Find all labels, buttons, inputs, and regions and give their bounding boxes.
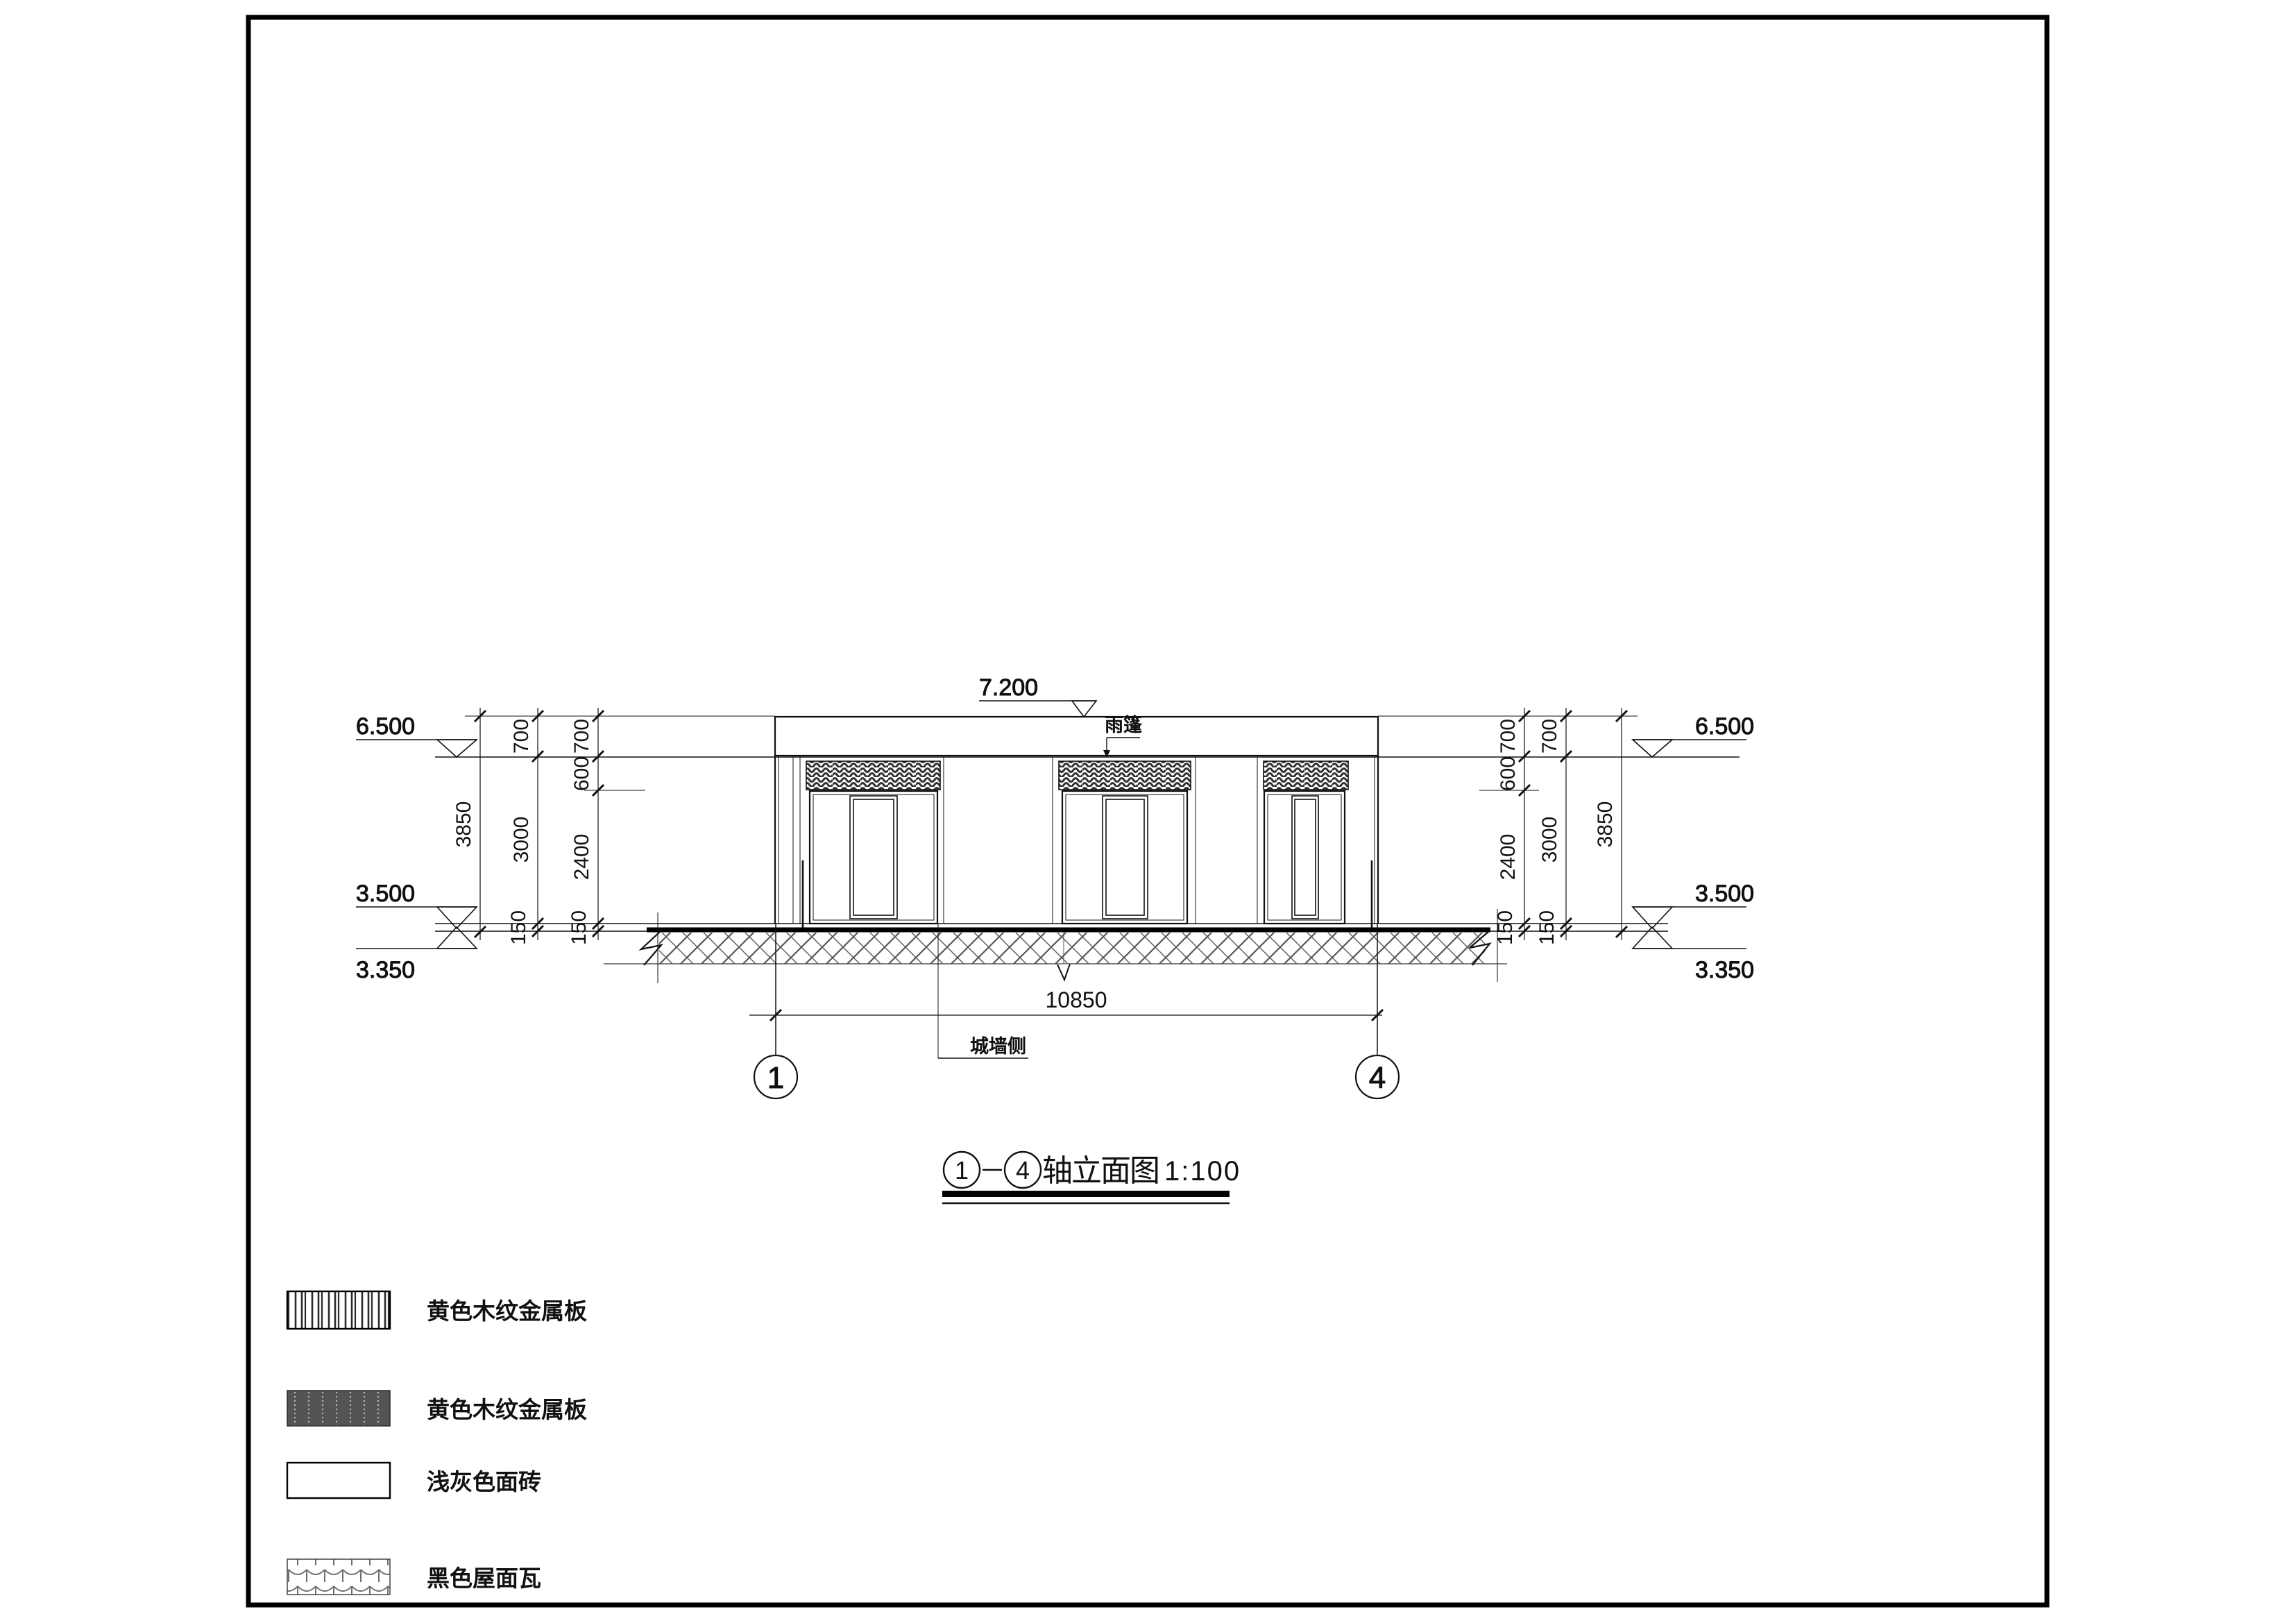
marker-right-3500-label: 3.500 bbox=[1695, 881, 1754, 907]
dim-right-in-600: 600 bbox=[1497, 756, 1520, 791]
dimension-texts: 3850 700 3000 150 700 600 2400 150 700 6… bbox=[452, 719, 1617, 1012]
legend-label-2: 黄色木纹金属板 bbox=[427, 1397, 587, 1422]
dim-left-in-700: 700 bbox=[570, 719, 593, 754]
marker-left-3350-triangle bbox=[437, 927, 477, 949]
door-unit-3 bbox=[1264, 791, 1345, 924]
dim-right-mid-3000: 3000 bbox=[1538, 817, 1561, 863]
dim-right-3850: 3850 bbox=[1594, 801, 1617, 848]
door-leaf-3 bbox=[1292, 796, 1318, 919]
transom-panel-2 bbox=[1059, 761, 1191, 790]
title-axis-from: 1 bbox=[955, 1156, 969, 1184]
marker-right-3350-triangle bbox=[1633, 927, 1672, 949]
marker-7200-triangle bbox=[1072, 701, 1096, 717]
title-axis-to: 4 bbox=[1016, 1156, 1030, 1184]
door-unit-1 bbox=[810, 791, 937, 924]
dim-left-mid-700: 700 bbox=[510, 719, 533, 754]
marker-7200-label: 7.200 bbox=[979, 674, 1038, 701]
legend-swatch-vertical-stripes bbox=[287, 1291, 390, 1329]
title-scale: 1:100 bbox=[1164, 1156, 1241, 1187]
legend-label-1: 黄色木纹金属板 bbox=[427, 1298, 587, 1324]
dim-left-mid-3000: 3000 bbox=[510, 817, 533, 863]
door-unit-2 bbox=[1062, 791, 1187, 924]
break-symbol-center bbox=[1057, 964, 1070, 980]
marker-right-3500-triangle bbox=[1633, 907, 1672, 928]
title-underline-thick bbox=[942, 1191, 1230, 1197]
wall-side-label: 城墙侧 bbox=[970, 1036, 1026, 1057]
dim-right-mid-700: 700 bbox=[1538, 719, 1561, 754]
drawing-title: 1 4 轴立面图 1:100 bbox=[942, 1152, 1241, 1203]
dim-right-in-150: 150 bbox=[1494, 910, 1517, 945]
woodgrain-transom-panels bbox=[806, 761, 1348, 790]
legend-swatch-roof-tiles bbox=[287, 1559, 390, 1595]
break-symbol-left bbox=[641, 931, 661, 965]
dim-left-3850: 3850 bbox=[452, 801, 475, 848]
door-leaf-1 bbox=[850, 796, 897, 919]
ground bbox=[435, 909, 1668, 983]
dim-right-in-700: 700 bbox=[1497, 719, 1520, 754]
dim-right-mid-150: 150 bbox=[1536, 910, 1558, 945]
marker-left-6500-label: 6.500 bbox=[356, 713, 415, 740]
marker-left-3350-label: 3.350 bbox=[356, 957, 415, 983]
dim-left-in-150: 150 bbox=[568, 910, 590, 945]
legend-label-3: 浅灰色面砖 bbox=[427, 1469, 541, 1495]
marker-right-6500-triangle bbox=[1633, 740, 1672, 757]
marker-right-3350-label: 3.350 bbox=[1695, 957, 1754, 983]
legend-swatch-plain-white bbox=[287, 1463, 390, 1498]
legend-label-4: 黑色屋面瓦 bbox=[427, 1565, 541, 1591]
fascia-band bbox=[775, 717, 1378, 756]
canopy-label: 雨篷 bbox=[1105, 715, 1142, 736]
material-legend: 黄色木纹金属板 黄色木纹金属板 浅灰色面砖 黑色屋面瓦 bbox=[287, 1291, 587, 1595]
title-text: 轴立面图 bbox=[1042, 1154, 1159, 1188]
dim-left-in-2400: 2400 bbox=[570, 834, 593, 881]
marker-left-6500-triangle bbox=[437, 740, 477, 757]
marker-right-6500-label: 6.500 bbox=[1695, 713, 1754, 740]
axis-number-4: 4 bbox=[1369, 1061, 1386, 1095]
drawing-sheet: 3850 700 3000 150 700 600 2400 150 700 6… bbox=[0, 0, 2296, 1623]
dim-left-in-600: 600 bbox=[570, 756, 593, 791]
axis-number-1: 1 bbox=[767, 1061, 784, 1095]
transom-panel-3 bbox=[1264, 761, 1348, 790]
legend-swatch-dark-metal bbox=[287, 1391, 390, 1426]
dim-overall-10850: 10850 bbox=[1046, 987, 1107, 1012]
marker-left-3500-label: 3.500 bbox=[356, 881, 415, 907]
elevation-drawing-canvas: 3850 700 3000 150 700 600 2400 150 700 6… bbox=[0, 0, 2296, 1623]
dim-left-mid-150: 150 bbox=[507, 910, 530, 945]
dim-right-in-2400: 2400 bbox=[1497, 834, 1520, 881]
transom-panel-1 bbox=[806, 761, 940, 790]
door-leaf-2 bbox=[1103, 796, 1148, 919]
ground-hatch-band bbox=[659, 933, 1485, 964]
marker-left-3500-triangle bbox=[437, 907, 477, 928]
